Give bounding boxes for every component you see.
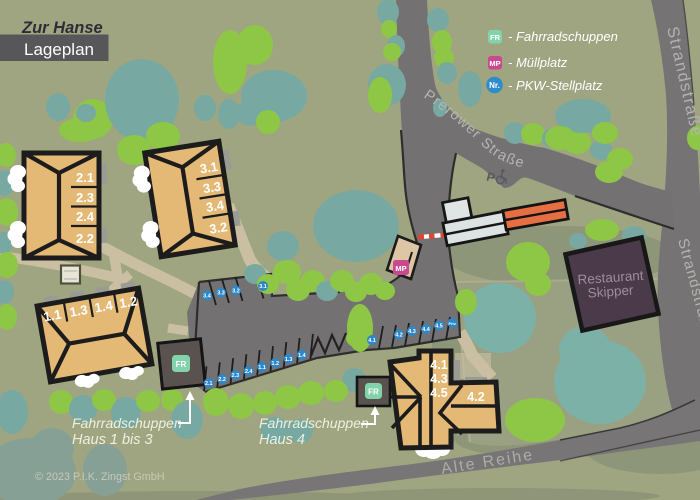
svg-text:4.2: 4.2 <box>395 333 403 339</box>
svg-text:3.1: 3.1 <box>259 284 267 290</box>
svg-text:Nr.: Nr. <box>489 81 500 90</box>
svg-text:1.2: 1.2 <box>118 293 138 311</box>
svg-text:- Fahrradschuppen: - Fahrradschuppen <box>508 29 618 44</box>
svg-text:1.2: 1.2 <box>272 361 280 367</box>
svg-text:2.4: 2.4 <box>245 369 253 375</box>
svg-text:2.3: 2.3 <box>76 190 94 205</box>
svg-text:1.1: 1.1 <box>258 365 266 371</box>
svg-text:3.4: 3.4 <box>203 294 211 300</box>
svg-text:Haus 4: Haus 4 <box>259 432 305 448</box>
svg-text:4.5: 4.5 <box>430 386 447 400</box>
svg-text:1.3: 1.3 <box>68 302 88 320</box>
svg-text:3.2: 3.2 <box>208 219 228 237</box>
svg-text:4.1: 4.1 <box>430 358 447 372</box>
svg-text:2.1: 2.1 <box>76 170 94 185</box>
svg-text:4.2: 4.2 <box>467 390 484 404</box>
svg-text:MP: MP <box>395 264 406 273</box>
svg-text:Fahrradschuppen: Fahrradschuppen <box>259 415 369 431</box>
svg-text:FR: FR <box>176 360 187 369</box>
svg-text:3.3: 3.3 <box>217 291 225 297</box>
svg-text:MP: MP <box>489 59 500 68</box>
svg-text:Lageplan: Lageplan <box>24 40 94 59</box>
svg-text:FR: FR <box>368 388 379 397</box>
svg-text:2.4: 2.4 <box>76 209 95 224</box>
svg-text:4.5: 4.5 <box>435 324 443 330</box>
svg-text:2.2: 2.2 <box>218 377 226 383</box>
svg-text:2.2: 2.2 <box>76 231 94 246</box>
svg-text:- Müllplatz: - Müllplatz <box>508 55 568 70</box>
svg-text:3.2: 3.2 <box>232 289 240 295</box>
svg-text:3.1: 3.1 <box>199 159 219 177</box>
svg-text:2.1: 2.1 <box>205 381 213 387</box>
svg-text:4.1: 4.1 <box>368 338 376 344</box>
svg-text:2.3: 2.3 <box>232 373 240 379</box>
svg-text:3.3: 3.3 <box>202 179 222 197</box>
svg-text:1.1: 1.1 <box>42 307 62 325</box>
svg-text:Zur Hanse: Zur Hanse <box>21 19 103 37</box>
svg-text:4.3: 4.3 <box>408 329 416 335</box>
svg-text:4.4: 4.4 <box>422 327 430 333</box>
svg-text:3.4: 3.4 <box>205 197 226 215</box>
svg-text:1.3: 1.3 <box>285 357 293 363</box>
svg-text:© 2023 P.I.K. Zingst GmbH: © 2023 P.I.K. Zingst GmbH <box>35 471 165 483</box>
svg-text:Fahrradschuppen: Fahrradschuppen <box>72 415 182 431</box>
svg-text:FR: FR <box>490 33 501 42</box>
svg-text:Priv.: Priv. <box>449 322 457 326</box>
svg-text:4.3: 4.3 <box>430 372 447 386</box>
svg-text:Haus 1 bis 3: Haus 1 bis 3 <box>72 432 153 448</box>
svg-text:- PKW-Stellplatz: - PKW-Stellplatz <box>508 78 603 93</box>
svg-text:1.4: 1.4 <box>298 353 306 359</box>
